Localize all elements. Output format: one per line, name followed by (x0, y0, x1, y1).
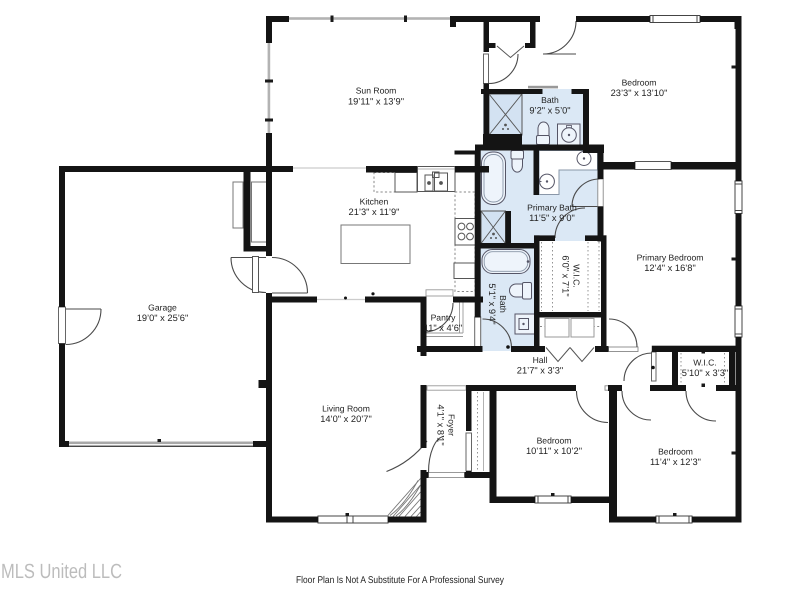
svg-text:11’5" x 9’0": 11’5" x 9’0" (529, 213, 575, 223)
svg-text:Bath: Bath (498, 295, 508, 313)
svg-text:19’0" x 25’6": 19’0" x 25’6" (137, 313, 189, 323)
svg-text:Floor Plan Is Not A Substitute: Floor Plan Is Not A Substitute For A Pro… (296, 575, 504, 586)
svg-text:21’7" x 3’3": 21’7" x 3’3" (517, 366, 563, 376)
svg-text:Sun Room: Sun Room (356, 86, 397, 96)
svg-text:Kitchen: Kitchen (360, 197, 389, 207)
svg-text:W.I.C.: W.I.C. (572, 264, 582, 287)
svg-text:14’0" x 20’7": 14’0" x 20’7" (320, 414, 372, 424)
svg-text:Living Room: Living Room (322, 404, 370, 414)
svg-text:6’0" x 7’1": 6’0" x 7’1" (561, 255, 571, 296)
svg-text:MLS United LLC: MLS United LLC (1, 560, 122, 583)
svg-text:Garage: Garage (148, 303, 177, 313)
svg-text:11" x 4’6": 11" x 4’6" (424, 323, 462, 333)
svg-text:W.I.C.: W.I.C. (693, 358, 716, 368)
svg-text:19’11" x 13’9": 19’11" x 13’9" (348, 97, 404, 107)
svg-text:5’1" x 9’4": 5’1" x 9’4" (487, 283, 497, 324)
svg-text:Hall: Hall (533, 355, 548, 365)
svg-text:Primary Bath: Primary Bath (527, 203, 577, 213)
svg-text:Bedroom: Bedroom (537, 436, 572, 446)
svg-text:Bedroom: Bedroom (622, 78, 657, 88)
svg-text:10’11" x 10’2": 10’11" x 10’2" (526, 446, 582, 456)
svg-text:Pantry: Pantry (431, 313, 457, 323)
svg-text:Bath: Bath (541, 95, 559, 105)
svg-text:12’4" x 16’8": 12’4" x 16’8" (644, 263, 696, 273)
svg-text:Primary Bedroom: Primary Bedroom (637, 253, 704, 263)
svg-text:23’3" x 13’10": 23’3" x 13’10" (611, 88, 668, 98)
svg-text:21’3" x 11’9": 21’3" x 11’9" (349, 207, 400, 217)
svg-text:11’4" x 12’3": 11’4" x 12’3" (650, 457, 701, 467)
svg-text:Bedroom: Bedroom (658, 447, 693, 457)
svg-text:Foyer: Foyer (447, 414, 457, 436)
svg-text:4’1" x 8’1": 4’1" x 8’1" (436, 404, 446, 445)
svg-text:9’2" x 5’0": 9’2" x 5’0" (529, 106, 570, 116)
svg-text:5’10" x 3’3": 5’10" x 3’3" (682, 368, 728, 378)
